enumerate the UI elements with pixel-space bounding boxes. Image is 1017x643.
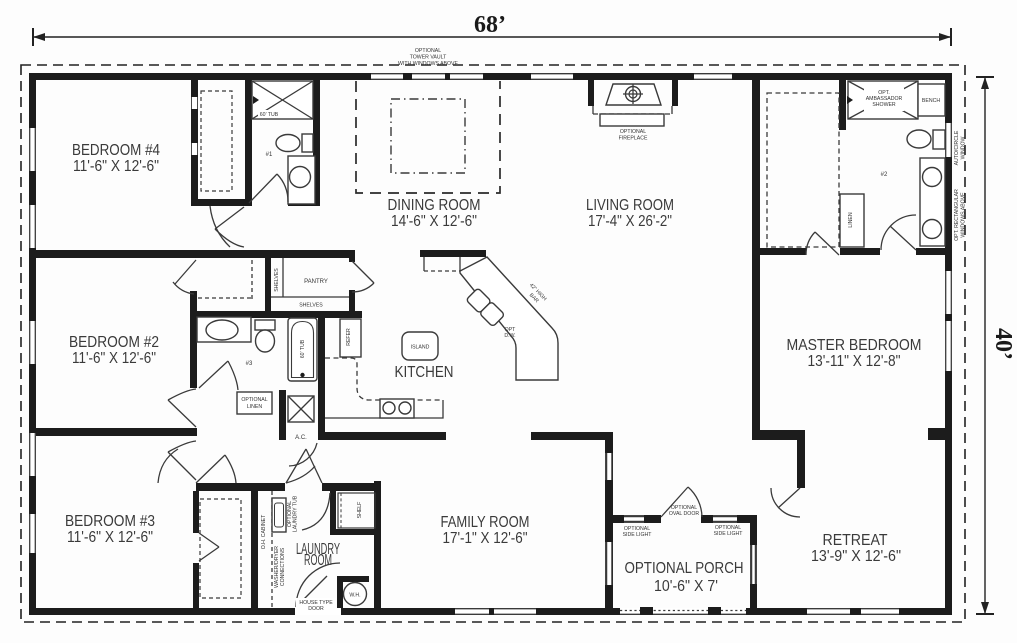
svg-text:#3: #3 bbox=[246, 361, 253, 367]
svg-text:40’: 40’ bbox=[990, 328, 1016, 360]
svg-text:17'-4" X 26'-2": 17'-4" X 26'-2" bbox=[588, 213, 672, 230]
svg-text:WINDOW: WINDOW bbox=[961, 137, 967, 160]
svg-text:BEDROOM #4: BEDROOM #4 bbox=[72, 142, 160, 159]
svg-text:KITCHEN: KITCHEN bbox=[395, 364, 454, 381]
svg-text:13'-11" X 12'-8": 13'-11" X 12'-8" bbox=[808, 353, 901, 370]
svg-text:TOWER VAULT: TOWER VAULT bbox=[410, 55, 447, 61]
svg-text:LIVING ROOM: LIVING ROOM bbox=[586, 197, 674, 214]
svg-text:#2: #2 bbox=[881, 172, 888, 178]
svg-text:#1: #1 bbox=[266, 152, 273, 158]
svg-text:60’ TUB: 60’ TUB bbox=[260, 112, 279, 118]
svg-text:D.W.: D.W. bbox=[504, 333, 515, 339]
svg-text:13'-9" X 12'-6": 13'-9" X 12'-6" bbox=[811, 548, 901, 565]
svg-text:LINEN: LINEN bbox=[848, 212, 854, 228]
svg-text:SHELF: SHELF bbox=[357, 502, 363, 519]
svg-text:OPT. RECTANGULAR: OPT. RECTANGULAR bbox=[954, 189, 960, 241]
svg-text:BENCH: BENCH bbox=[922, 98, 940, 104]
svg-text:10'-6" X 7': 10'-6" X 7' bbox=[654, 578, 718, 595]
svg-text:REFER: REFER bbox=[346, 328, 352, 346]
svg-text:BEDROOM #2: BEDROOM #2 bbox=[69, 334, 159, 351]
svg-text:OPTIONAL: OPTIONAL bbox=[241, 397, 267, 403]
svg-text:OPTIONAL: OPTIONAL bbox=[415, 48, 441, 54]
svg-text:11'-6" X 12'-6": 11'-6" X 12'-6" bbox=[73, 158, 159, 175]
svg-text:11'-6" X 12'-6": 11'-6" X 12'-6" bbox=[72, 350, 156, 367]
svg-text:OVAL DOOR: OVAL DOOR bbox=[669, 511, 700, 517]
svg-text:BEDROOM #3: BEDROOM #3 bbox=[65, 513, 155, 530]
svg-text:SIDE LIGHT: SIDE LIGHT bbox=[623, 532, 653, 538]
svg-text:WITH WINDOWS ABOVE: WITH WINDOWS ABOVE bbox=[398, 61, 458, 67]
svg-text:SHELVES: SHELVES bbox=[299, 303, 323, 309]
svg-text:LAUNDRY TUB: LAUNDRY TUB bbox=[293, 495, 299, 532]
svg-text:OPTIONAL: OPTIONAL bbox=[620, 129, 646, 135]
svg-text:LINEN: LINEN bbox=[247, 404, 263, 410]
svg-text:A.C.: A.C. bbox=[295, 435, 307, 441]
svg-text:SIDE LIGHT: SIDE LIGHT bbox=[714, 531, 744, 537]
svg-text:ISLAND: ISLAND bbox=[411, 345, 430, 351]
svg-text:17'-1" X 12'-6": 17'-1" X 12'-6" bbox=[443, 530, 528, 547]
svg-text:MASTER BEDROOM: MASTER BEDROOM bbox=[787, 337, 922, 354]
svg-text:CONNECTIONS: CONNECTIONS bbox=[280, 547, 286, 586]
svg-text:11'-6" X 12'-6": 11'-6" X 12'-6" bbox=[67, 529, 153, 546]
svg-text:AUTO/CIRCLE: AUTO/CIRCLE bbox=[954, 130, 960, 165]
svg-text:WINDOWS ABOVE: WINDOWS ABOVE bbox=[961, 192, 967, 238]
svg-text:14'-6" X 12'-6": 14'-6" X 12'-6" bbox=[391, 213, 477, 230]
svg-text:O.H. CABINET: O.H. CABINET bbox=[261, 514, 267, 549]
svg-text:60’ TUB: 60’ TUB bbox=[300, 339, 306, 358]
svg-text:PANTRY: PANTRY bbox=[304, 279, 328, 285]
svg-text:W.H.: W.H. bbox=[349, 593, 360, 599]
svg-text:FAMILY ROOM: FAMILY ROOM bbox=[441, 514, 530, 531]
svg-text:ROOM: ROOM bbox=[304, 552, 332, 569]
svg-text:FIREPLACE: FIREPLACE bbox=[619, 136, 648, 142]
svg-text:DOOR: DOOR bbox=[308, 606, 324, 612]
svg-text:SHELVES: SHELVES bbox=[274, 268, 280, 292]
svg-text:DINING ROOM: DINING ROOM bbox=[388, 197, 481, 214]
svg-text:RETREAT: RETREAT bbox=[823, 532, 888, 549]
svg-text:OPTIONAL PORCH: OPTIONAL PORCH bbox=[625, 560, 744, 577]
svg-text:68’: 68’ bbox=[474, 12, 506, 38]
svg-text:SHOWER: SHOWER bbox=[872, 102, 896, 108]
